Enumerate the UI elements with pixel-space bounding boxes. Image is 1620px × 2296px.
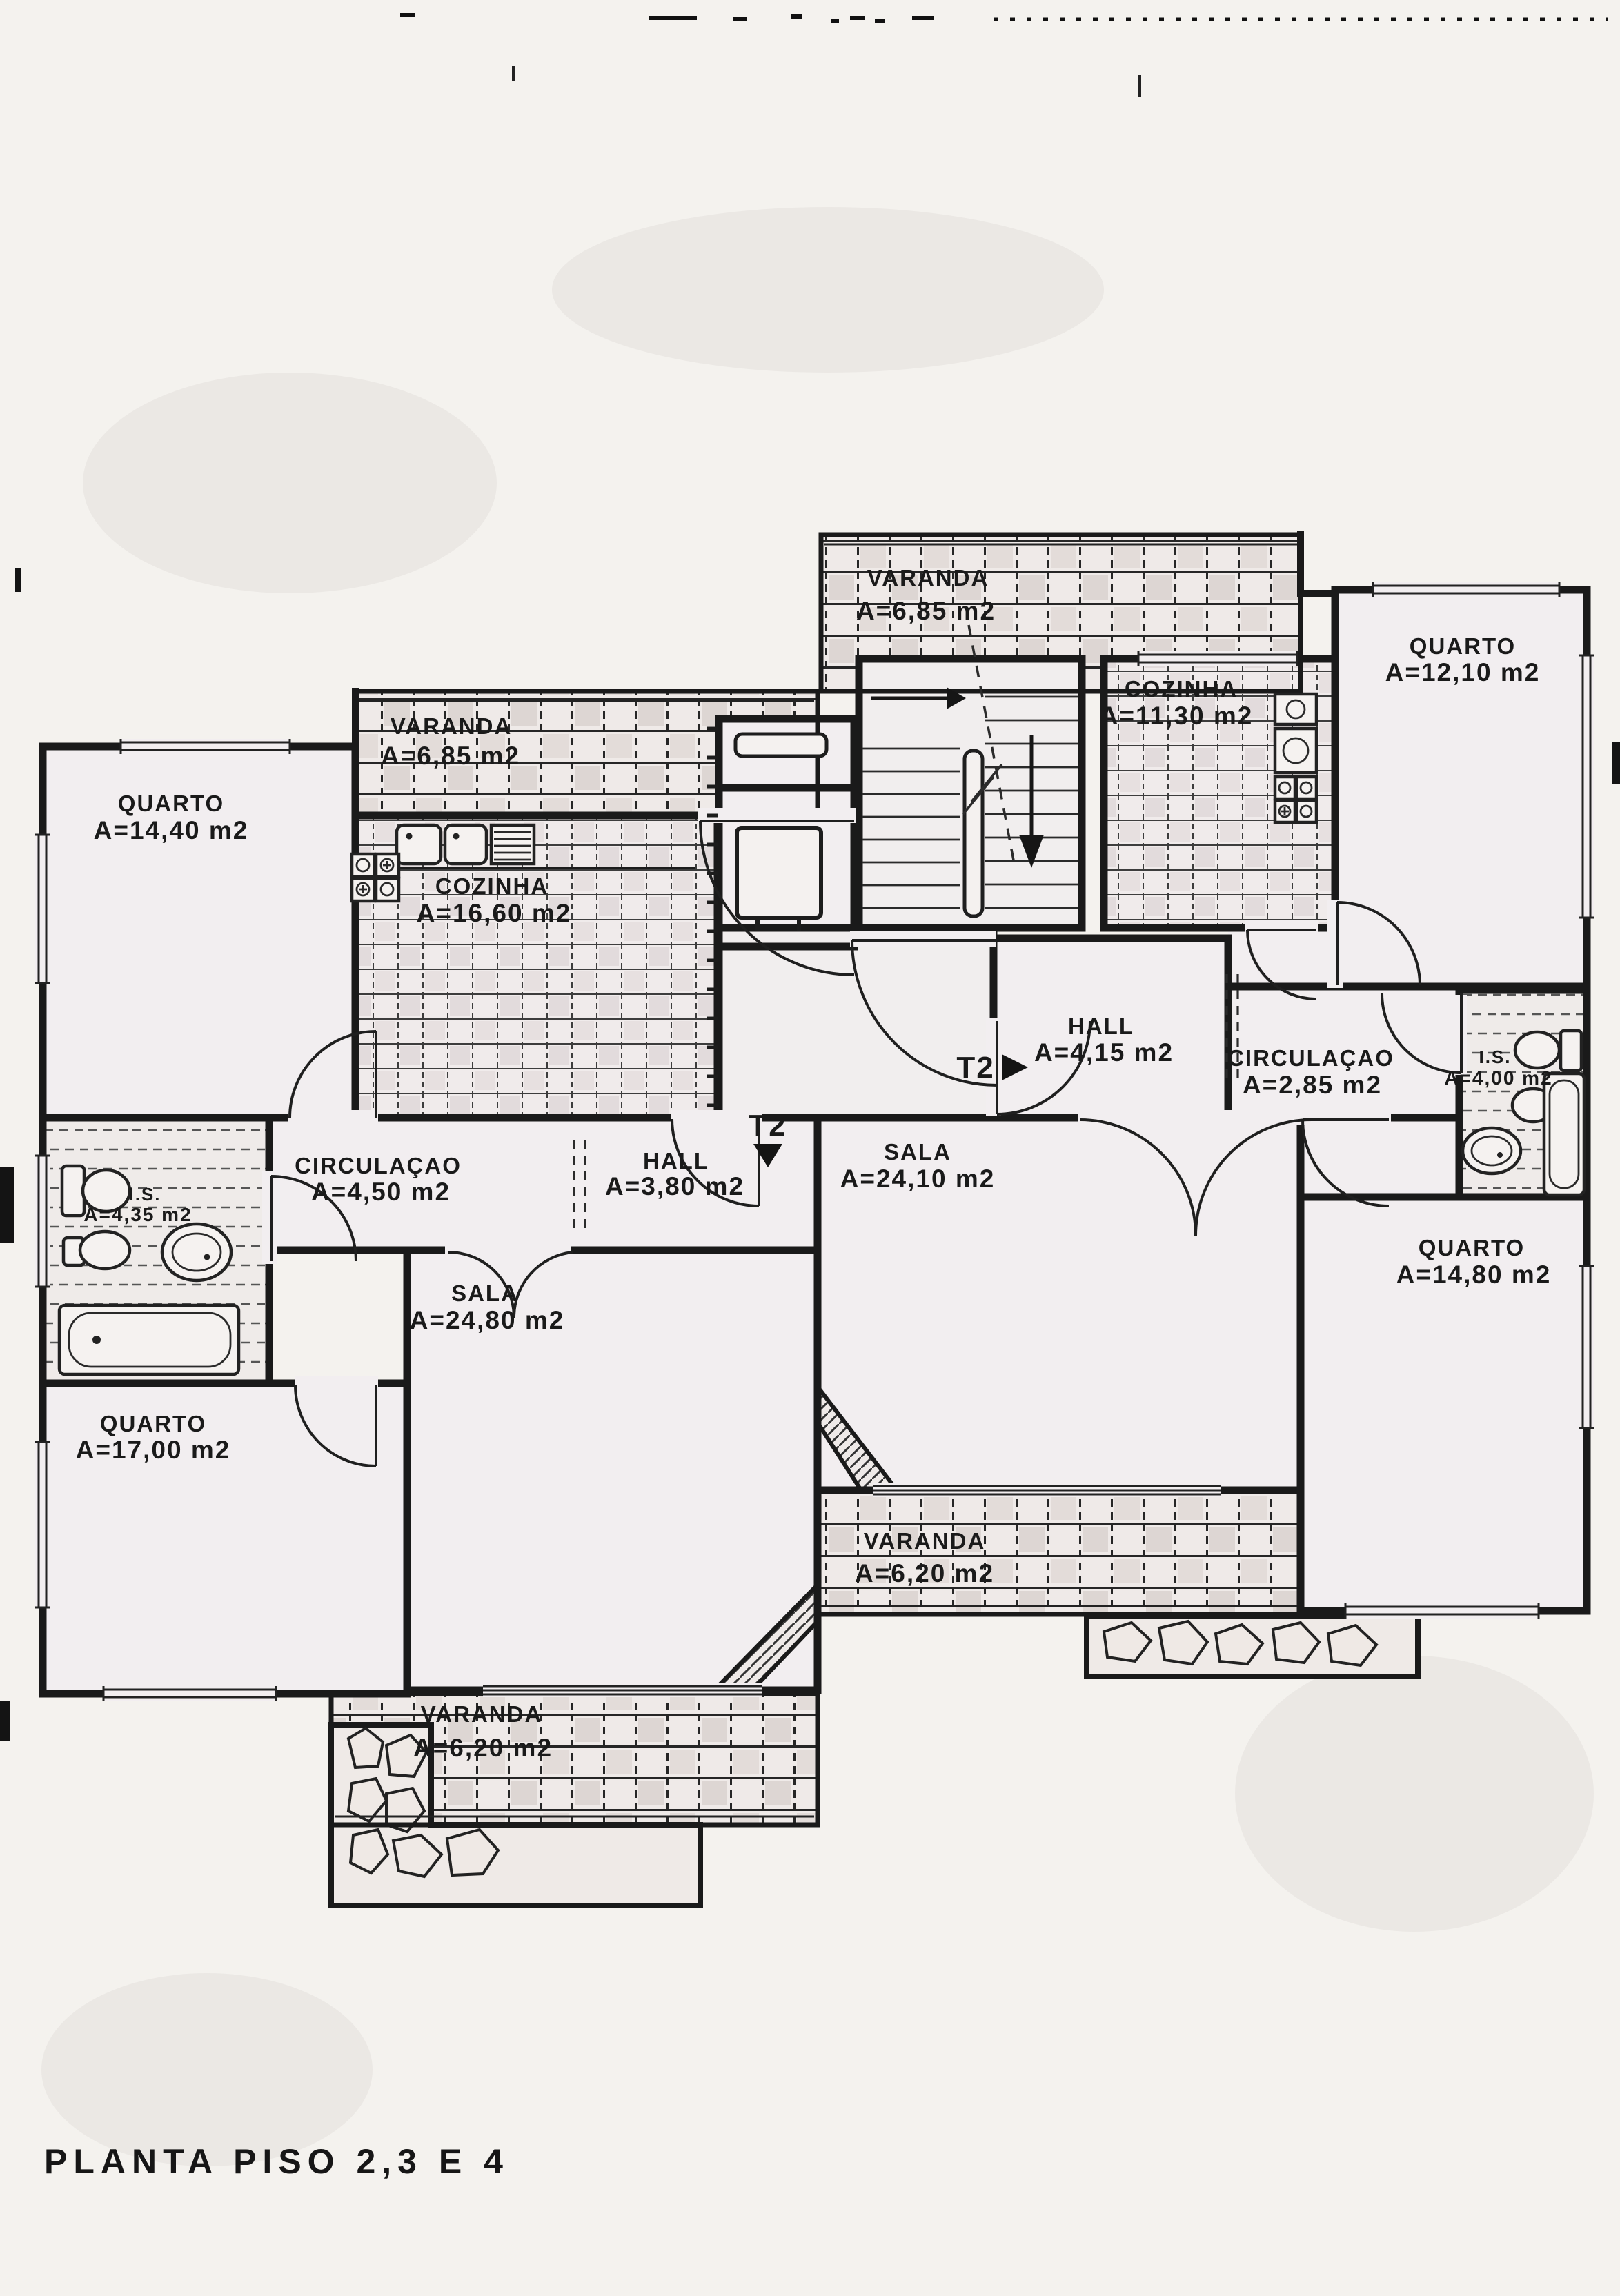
room-area: A=6,20 m2 [413, 1734, 553, 1762]
sink-icon [397, 825, 441, 864]
window [35, 835, 50, 983]
room-label: VARANDA [391, 713, 513, 739]
room-area: A=6,85 m2 [381, 742, 520, 770]
window [103, 1686, 276, 1701]
floor-plan-drawing: QUARTO A=14,40 m2 VARANDA A=6,85 m2 COZI… [0, 0, 1620, 2296]
room-area: A=6,85 m2 [856, 597, 996, 625]
drainer-icon [491, 825, 534, 864]
toilet-icon [1515, 1031, 1581, 1071]
bathtub-icon [1544, 1073, 1584, 1195]
room-label: HALL [1068, 1013, 1134, 1039]
cooktop-icon [352, 854, 399, 901]
room-label: CIRCULAÇAO [1227, 1045, 1394, 1071]
room-label: CIRCULAÇAO [295, 1153, 462, 1178]
window [35, 1442, 50, 1607]
room-label: SALA [451, 1280, 519, 1306]
vestibule-cozinha [1228, 928, 1335, 987]
appliance-icon [1275, 729, 1316, 773]
room-area: A=4,50 m2 [311, 1178, 451, 1206]
room-label: VARANDA [867, 565, 989, 591]
vent-slot [735, 734, 827, 756]
washbasin-icon [1463, 1128, 1521, 1174]
room-label: QUARTO [1419, 1235, 1525, 1260]
svg-text:T2: T2 [749, 1109, 787, 1142]
cooktop-icon [1275, 777, 1316, 822]
room-label: HALL [643, 1148, 709, 1174]
room-area: A=24,80 m2 [410, 1306, 565, 1334]
window [35, 1156, 50, 1287]
room-area: A=3,80 m2 [605, 1172, 744, 1200]
scanned-sheet: QUARTO A=14,40 m2 VARANDA A=6,85 m2 COZI… [0, 0, 1620, 2296]
elevator-cab [737, 828, 821, 918]
vestibule-quarto-14-80 [1301, 1118, 1459, 1197]
window [1138, 651, 1297, 666]
sink-icon [445, 825, 486, 864]
room-area: A=14,80 m2 [1396, 1260, 1552, 1289]
room-area: A=6,20 m2 [855, 1559, 994, 1587]
room-label: COZINHA [1125, 676, 1238, 702]
room-area: A=12,10 m2 [1385, 658, 1541, 686]
room-label: SALA [884, 1139, 951, 1165]
appliance-icon [1275, 694, 1316, 724]
room-area: A=24,10 m2 [840, 1165, 996, 1193]
room-area: A=11,30 m2 [1100, 702, 1254, 730]
room-area: A=16,60 m2 [417, 899, 572, 927]
room-label: I.S. [1479, 1047, 1511, 1067]
room-area: A=14,40 m2 [94, 816, 249, 844]
room-quarto-17-00 [43, 1383, 407, 1694]
room-label: QUARTO [100, 1411, 206, 1436]
room-label: VARANDA [421, 1701, 543, 1727]
window [121, 739, 290, 754]
room-area: A=4,00 m2 [1444, 1067, 1552, 1089]
room-area: A=4,35 m2 [83, 1204, 192, 1225]
sliding-door [483, 1683, 762, 1697]
room-area: A=4,15 m2 [1034, 1038, 1174, 1067]
room-area: A=2,85 m2 [1243, 1071, 1382, 1099]
planter-center [1087, 1616, 1418, 1676]
window [1579, 655, 1594, 918]
washbasin-icon [162, 1224, 231, 1280]
room-area: A=17,00 m2 [76, 1436, 231, 1464]
svg-text:T2: T2 [956, 1051, 994, 1085]
landing-floor [719, 928, 994, 1118]
room-label: QUARTO [118, 791, 224, 816]
window [1373, 582, 1559, 597]
bathtub-icon [59, 1305, 239, 1374]
drawing-title: PLANTA PISO 2,3 E 4 [44, 2142, 509, 2181]
sliding-door [873, 1483, 1221, 1497]
window [1345, 1603, 1539, 1619]
room-label: COZINHA [435, 873, 549, 899]
room-label: VARANDA [864, 1528, 986, 1554]
bidet-icon [63, 1231, 130, 1269]
window [1579, 1266, 1594, 1428]
room-label: I.S. [128, 1184, 161, 1205]
room-label: QUARTO [1410, 633, 1516, 659]
kitchen-11-fittings [1275, 694, 1316, 822]
